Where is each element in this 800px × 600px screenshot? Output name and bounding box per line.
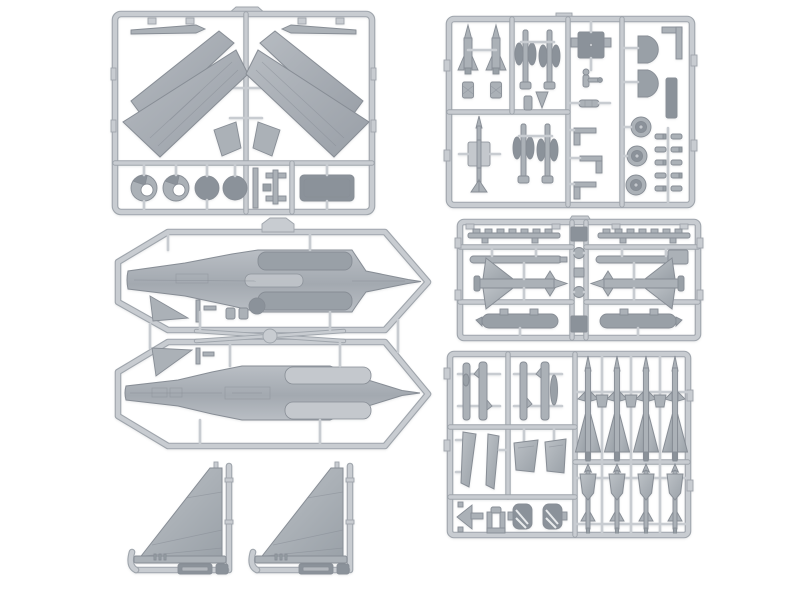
arrow-part bbox=[457, 502, 483, 532]
tiny-parts-grid bbox=[655, 128, 682, 202]
big-missile bbox=[576, 356, 601, 461]
model-kit-photo bbox=[0, 0, 800, 600]
missile-body bbox=[667, 464, 683, 533]
wing-panels-left bbox=[123, 31, 248, 157]
angle-bracket bbox=[662, 27, 682, 59]
u-clamp-part bbox=[487, 507, 505, 533]
wing-panels-right bbox=[246, 31, 369, 157]
tail-fin-unit bbox=[131, 462, 233, 574]
rudder-fins bbox=[514, 427, 566, 473]
pilot-figure bbox=[583, 69, 602, 87]
fuel-tank-pod bbox=[476, 309, 558, 338]
sprue-stores bbox=[455, 216, 703, 338]
missile-half-cluster bbox=[458, 362, 500, 420]
fuselage-lower-half bbox=[125, 342, 420, 446]
missile-body bbox=[580, 464, 596, 533]
wheel-disc bbox=[195, 176, 219, 200]
sprue-tailfins bbox=[131, 462, 354, 574]
wedge-fins bbox=[456, 432, 508, 489]
fuel-tank-pod bbox=[600, 309, 682, 338]
bracket-parts bbox=[568, 128, 602, 199]
wheel-disc bbox=[223, 176, 247, 200]
launch-rail-serrated bbox=[598, 229, 690, 243]
seat-box bbox=[571, 19, 611, 70]
small-fin-part bbox=[152, 348, 192, 376]
intake-trunk bbox=[285, 402, 371, 419]
launch-rail-serrated bbox=[468, 229, 560, 243]
wheel-tire bbox=[131, 175, 157, 201]
missile-body bbox=[609, 464, 625, 533]
sprue-missiles bbox=[444, 354, 693, 535]
missile-half-cluster bbox=[514, 362, 562, 420]
sprue-small-parts bbox=[444, 13, 697, 205]
tail-fin-unit bbox=[252, 462, 354, 574]
small-fin-part bbox=[150, 296, 188, 321]
wheel-tire bbox=[163, 175, 189, 201]
engine-nacelle bbox=[258, 292, 352, 310]
wheel bbox=[627, 146, 647, 166]
intake-lip bbox=[622, 36, 658, 97]
small-bracket bbox=[524, 92, 548, 110]
fuselage-upper-half bbox=[127, 232, 421, 330]
cylinder-part bbox=[568, 100, 610, 107]
big-missile bbox=[605, 356, 630, 461]
landing-gear-struts bbox=[515, 30, 560, 89]
wheel bbox=[631, 117, 651, 137]
vane-plate bbox=[654, 395, 666, 407]
big-missile bbox=[663, 356, 688, 461]
slat-blade-left bbox=[131, 18, 205, 34]
sprue-canvas bbox=[0, 0, 800, 600]
engine-nacelle bbox=[258, 252, 352, 270]
vane-plate bbox=[625, 395, 637, 407]
small-slat-and-ladder bbox=[253, 168, 286, 208]
slim-missile bbox=[459, 116, 500, 192]
wheel bbox=[626, 175, 646, 195]
sprue-wings bbox=[111, 7, 376, 212]
hatch-panel bbox=[300, 163, 354, 212]
vane-plate bbox=[596, 395, 608, 407]
slat-blade-right bbox=[282, 18, 356, 34]
bomb-part bbox=[486, 25, 506, 98]
missile-body bbox=[638, 464, 654, 533]
sprue-fuselage bbox=[118, 218, 428, 446]
bomb-part bbox=[458, 25, 478, 98]
fan-disc bbox=[543, 504, 567, 529]
fan-disc bbox=[508, 504, 532, 529]
tall-plate bbox=[666, 78, 677, 118]
big-missile bbox=[634, 356, 659, 461]
intake-trunk bbox=[285, 367, 371, 384]
landing-gear-struts bbox=[513, 124, 558, 183]
